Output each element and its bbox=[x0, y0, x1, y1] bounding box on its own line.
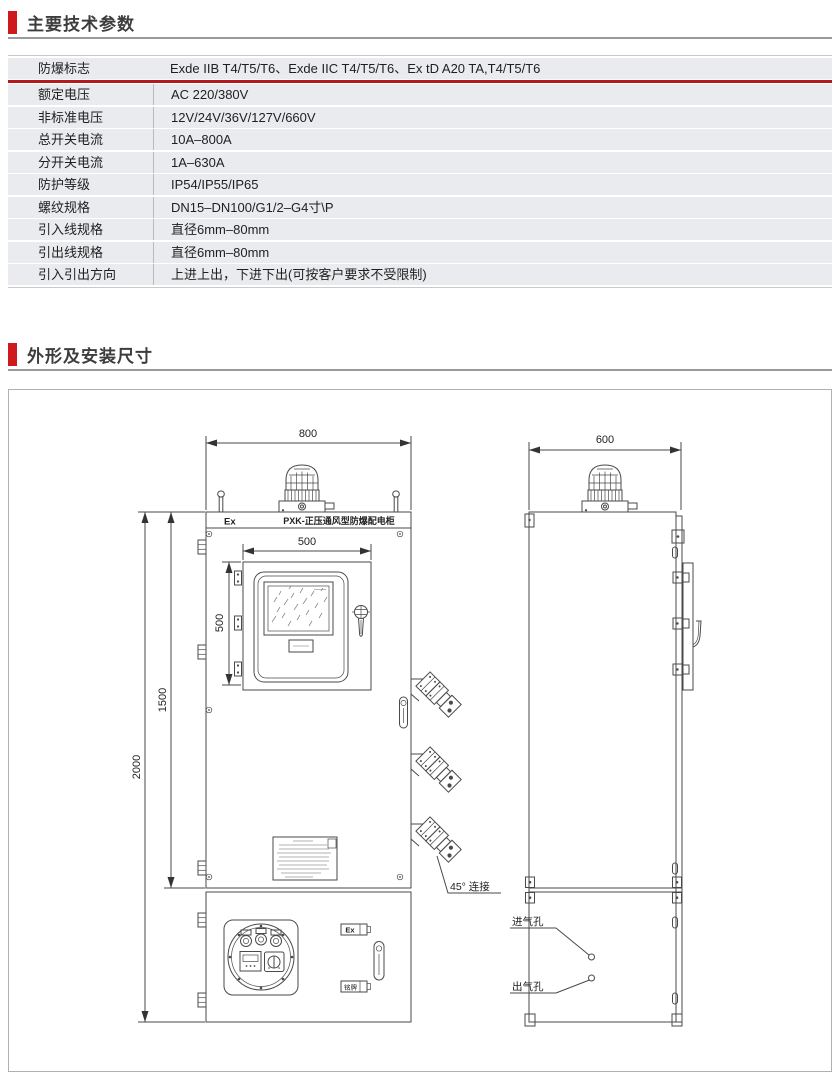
spec-value: Exde IIB T4/T5/T6、Exde IIC T4/T5/T6、Ex t… bbox=[153, 58, 832, 79]
dimension-drawing-box: 800 2000 1500 Ex PXK-正压通风型防爆配电柜 500 bbox=[8, 389, 832, 1072]
dim-side-depth: 600 bbox=[596, 434, 614, 446]
spec-value: 1A–630A bbox=[153, 152, 832, 173]
hinge-icon bbox=[235, 571, 242, 585]
spec-label: 防爆标志 bbox=[8, 58, 153, 79]
spec-value: 直径6mm–80mm bbox=[153, 219, 832, 240]
table-row: 分开关电流 1A–630A bbox=[8, 152, 832, 173]
dim-door-width: 500 bbox=[298, 536, 316, 548]
spec-value: 12V/24V/36V/127V/660V bbox=[153, 107, 832, 128]
band-title: PXK-正压通风型防爆配电柜 bbox=[283, 515, 395, 526]
dimension-drawing: 800 2000 1500 Ex PXK-正压通风型防爆配电柜 500 bbox=[9, 390, 831, 1071]
instruction-plate bbox=[273, 837, 337, 880]
table-row: 引出线规格 直径6mm–80mm bbox=[8, 242, 832, 263]
spec-label: 分开关电流 bbox=[8, 152, 153, 173]
foot bbox=[525, 1014, 535, 1026]
meter-icon bbox=[240, 952, 261, 972]
hinge-icon bbox=[673, 618, 689, 629]
ex-plate: Ex bbox=[341, 924, 371, 935]
lower-body bbox=[206, 892, 411, 1022]
edge-handle-icon bbox=[400, 697, 408, 728]
inlet-label: 进气孔 bbox=[512, 915, 544, 928]
side-view: 600 进气孔 bbox=[510, 434, 701, 1026]
foot bbox=[672, 1014, 682, 1026]
view-window bbox=[264, 582, 333, 635]
dim-front-width: 800 bbox=[299, 428, 317, 440]
hinge-icon bbox=[673, 572, 689, 583]
spec-value: DN15–DN100/G1/2–G4寸\P bbox=[153, 197, 832, 218]
spec-value: IP54/IP55/IP65 bbox=[153, 174, 832, 195]
red-bullet bbox=[8, 11, 17, 34]
table-row: 非标准电压 12V/24V/36V/127V/660V bbox=[8, 107, 832, 128]
nameplate-plate: 铭牌 bbox=[341, 981, 371, 992]
spec-label: 防护等级 bbox=[8, 174, 153, 195]
note-45-connection: 45° 连接 bbox=[450, 880, 490, 893]
table-row: 防护等级 IP54/IP55/IP65 bbox=[8, 174, 832, 195]
table-row: 引入线规格 直径6mm–80mm bbox=[8, 219, 832, 240]
plug-connector-icon bbox=[411, 672, 462, 718]
spec-value: 10A–800A bbox=[153, 129, 832, 150]
spec-value: 直径6mm–80mm bbox=[153, 242, 832, 263]
dim-door-height: 500 bbox=[214, 614, 226, 632]
spec-value: AC 220/380V bbox=[153, 84, 832, 105]
door-frame bbox=[243, 562, 371, 690]
spec-value: 上进上出，下进下出(可按客户要求不受限制) bbox=[153, 264, 832, 285]
spec-label: 螺纹规格 bbox=[8, 197, 153, 218]
beacon-light-icon bbox=[279, 465, 334, 512]
svg-text:铭牌: 铭牌 bbox=[344, 983, 358, 992]
section-header-specs: 主要技术参数 bbox=[8, 10, 135, 34]
spec-label: 非标准电压 bbox=[8, 107, 153, 128]
door-handle-icon bbox=[352, 606, 370, 637]
lifting-lug-icon bbox=[393, 491, 400, 512]
front-view: 800 2000 1500 Ex PXK-正压通风型防爆配电柜 500 bbox=[131, 428, 501, 1022]
beacon-light-icon bbox=[582, 465, 637, 512]
dim-total-height: 2000 bbox=[131, 755, 143, 779]
spec-label: 引出线规格 bbox=[8, 242, 153, 263]
plug-connector-icon bbox=[411, 747, 462, 793]
outlet-label: 出气孔 bbox=[512, 980, 544, 993]
hinge-icon bbox=[235, 616, 242, 630]
dim-body-height: 1500 bbox=[157, 688, 169, 712]
table-row: 防爆标志 Exde IIB T4/T5/T6、Exde IIC T4/T5/T6… bbox=[8, 58, 832, 79]
spec-label: 额定电压 bbox=[8, 84, 153, 105]
section-rule bbox=[8, 37, 832, 39]
section-header-dimensions: 外形及安装尺寸 bbox=[8, 342, 153, 366]
table-row: 总开关电流 10A–800A bbox=[8, 129, 832, 150]
lifting-lug-icon bbox=[218, 491, 225, 512]
glass-hatch bbox=[272, 586, 327, 626]
table-row: 引入引出方向 上进上出，下进下出(可按客户要求不受限制) bbox=[8, 264, 832, 285]
ex-mark: Ex bbox=[224, 517, 236, 528]
table-row: 额定电压 AC 220/380V bbox=[8, 84, 832, 105]
red-bullet bbox=[8, 343, 17, 366]
spec-label: 总开关电流 bbox=[8, 129, 153, 150]
spec-label: 引入线规格 bbox=[8, 219, 153, 240]
spec-label: 引入引出方向 bbox=[8, 264, 153, 285]
plug-connector-icon bbox=[411, 817, 462, 863]
section-title: 外形及安装尺寸 bbox=[27, 342, 153, 367]
outlet-hole bbox=[589, 975, 595, 981]
table-row: 螺纹规格 DN15–DN100/G1/2–G4寸\P bbox=[8, 197, 832, 218]
svg-text:Ex: Ex bbox=[345, 926, 355, 935]
indicator-slot-icon bbox=[374, 942, 384, 981]
section-rule bbox=[8, 369, 832, 371]
inlet-hole bbox=[589, 954, 595, 960]
gauge-panel bbox=[224, 920, 298, 995]
rotary-switch-icon bbox=[265, 952, 285, 972]
hinge-icon bbox=[235, 662, 242, 676]
door-edge bbox=[676, 516, 682, 1022]
hinge-icon bbox=[673, 664, 689, 675]
spec-table: 防爆标志 Exde IIB T4/T5/T6、Exde IIC T4/T5/T6… bbox=[8, 55, 832, 288]
section-title: 主要技术参数 bbox=[27, 10, 135, 35]
red-divider bbox=[8, 80, 832, 83]
side-handle-icon bbox=[693, 621, 701, 647]
